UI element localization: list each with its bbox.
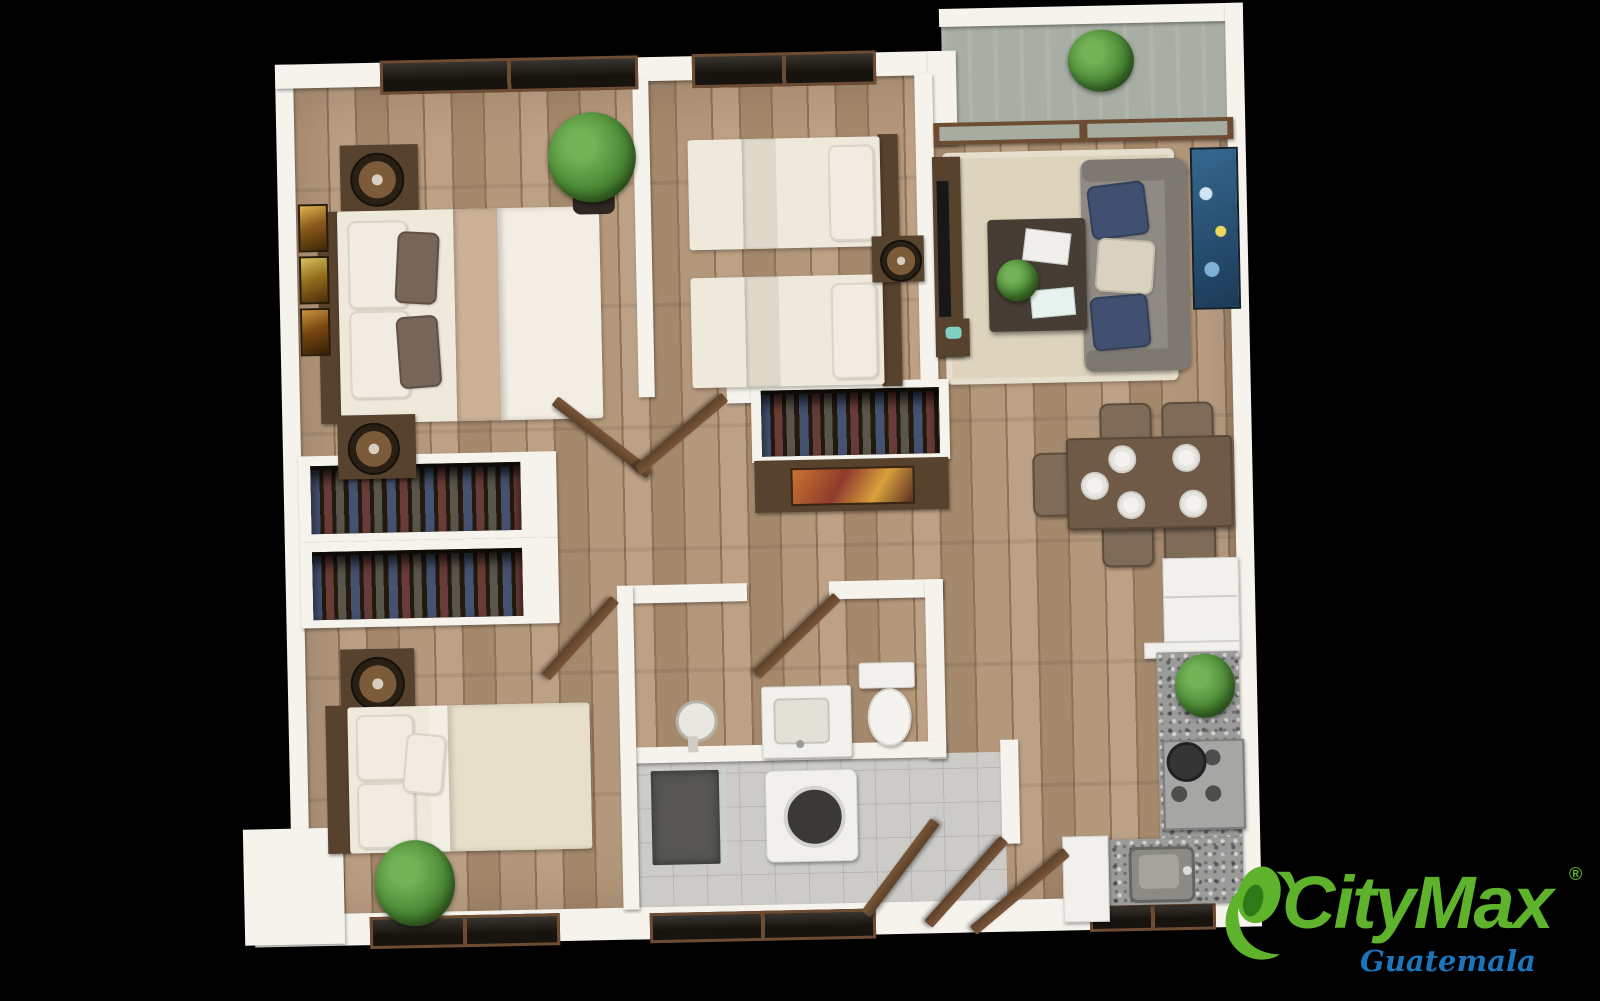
master-bed-blanket	[453, 208, 501, 421]
sofa-armrest-bottom	[1086, 348, 1188, 372]
balcony-sliding-glass-2	[1087, 121, 1227, 138]
entry-cabinet	[1062, 836, 1110, 923]
citymax-logo: CityMax ® Guatemala	[1185, 850, 1585, 990]
registered-mark: ®	[1569, 864, 1582, 885]
sofa-pillow-cream	[1094, 237, 1155, 295]
refrigerator	[1162, 557, 1240, 643]
hall-artwork	[790, 466, 915, 507]
balcony-sliding-glass-1	[939, 124, 1079, 141]
bedroom2-bedB-fold	[744, 276, 780, 387]
bedroom3-bed-headboard	[325, 706, 350, 854]
window-laundry	[650, 909, 877, 944]
toilet-tank	[858, 662, 915, 689]
window-master	[380, 55, 639, 94]
master-accent-pillow-2	[395, 315, 442, 390]
sofa-pillow-navy-1	[1086, 180, 1150, 241]
wall-bath-right	[925, 579, 947, 759]
living-wall-art	[1190, 147, 1241, 310]
master-wall-art-3	[300, 308, 331, 357]
bedroom3-closet-clothes	[312, 548, 523, 620]
master-accent-pillow-1	[394, 231, 439, 305]
bedroom2-bedA-fold	[741, 138, 777, 249]
bathroom-mirror-stand	[688, 736, 698, 752]
kitchen-sink-basin	[1139, 854, 1180, 889]
bedroom3-duvet	[447, 702, 592, 851]
master-wall-art-2	[299, 256, 330, 305]
window-bedroom2	[692, 50, 877, 88]
master-bed-duvet	[497, 206, 603, 420]
brand-name: CityMax	[1282, 860, 1552, 945]
screenshot-canvas: CityMax ® Guatemala	[0, 0, 1600, 1001]
bedroom2-closet-clothes	[761, 387, 940, 457]
coffee-table-magazine-1	[1022, 228, 1071, 265]
coffee-table-magazine-2	[1030, 287, 1076, 319]
shower-pan	[651, 770, 721, 865]
bedroom2-bedA-pillow	[828, 144, 876, 241]
master-wall-art-1	[298, 204, 329, 253]
bedroom3-small-pillow	[402, 732, 447, 795]
wall-bath-top-left	[631, 583, 747, 603]
sofa-pillow-navy-2	[1089, 293, 1152, 352]
side-table-decor	[945, 327, 961, 339]
wall-laundry-stub	[1000, 739, 1020, 843]
bathroom-sink	[773, 697, 830, 744]
bedroom2-bedB-pillow	[831, 282, 879, 379]
sofa-armrest-top	[1082, 158, 1184, 182]
sofa-back-cushion	[1164, 160, 1190, 368]
brand-region: Guatemala	[1360, 944, 1536, 978]
